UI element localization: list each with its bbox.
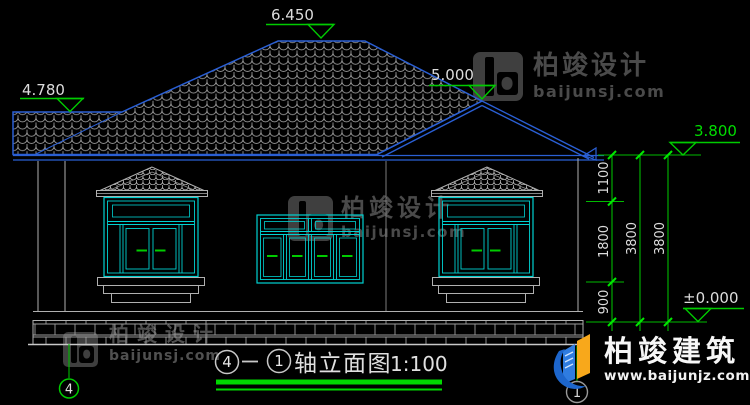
bay-pediment [435, 167, 539, 191]
gable-end-cap [584, 148, 596, 160]
marker-right-eave: 3.800 [670, 122, 740, 155]
axis-number: 4 [65, 383, 73, 398]
bay-pediment [100, 167, 204, 191]
elevation-value: 3.800 [694, 122, 737, 140]
title-underline-thin [216, 389, 442, 391]
bay-sill [433, 278, 540, 303]
bay-sill [98, 278, 205, 303]
title-axis-from: 4 [222, 353, 232, 371]
dim-text-3800-a: 3800 [625, 222, 640, 255]
plinth-top-lines [33, 312, 583, 321]
level-triangle-icon [670, 143, 696, 156]
drawing-title: 4 1 轴立面图 1:100 [216, 350, 448, 391]
title-axis-to: 1 [274, 352, 284, 370]
level-triangle-icon [57, 99, 83, 112]
elevation-value: 6.450 [271, 6, 314, 24]
dim-text-3800-b: 3800 [653, 222, 668, 255]
dim-text-900: 900 [597, 290, 612, 315]
elevation-value: ±0.000 [683, 289, 739, 307]
elevation-value: 5.000 [431, 66, 474, 84]
brand-domain-text: www.baijunjz.com [604, 368, 750, 384]
title-name: 轴立面图 [294, 351, 392, 377]
brand-logo: 柏竣建筑 www.baijunjz.com [549, 329, 750, 391]
baijun-building-icon [549, 329, 601, 391]
marker-ground: ±0.000 [683, 289, 744, 322]
eave-line [13, 156, 604, 161]
brand-cn-text: 柏竣建筑 [604, 336, 750, 368]
elevation-value: 4.780 [22, 81, 65, 99]
brick-plinth [33, 321, 583, 345]
level-triangle-icon [685, 309, 711, 322]
title-scale: 1:100 [390, 352, 448, 376]
title-underline-thick [216, 380, 442, 385]
cad-elevation-canvas: 柏竣设计 baijunsj.com 柏竣设计 baijunsj.com 柏竣设计… [0, 0, 750, 405]
main-roof [13, 41, 604, 160]
left-bay-window [97, 167, 208, 303]
marker-ridge: 6.450 [266, 6, 334, 38]
right-bay-window [432, 167, 543, 303]
marker-left-roof: 4.780 [20, 81, 84, 112]
dim-text-1100: 1100 [597, 161, 612, 194]
center-window [257, 215, 363, 283]
axis-bubble-left: 4 [60, 344, 79, 398]
level-triangle-icon [308, 25, 334, 39]
dim-text-1800: 1800 [597, 225, 612, 258]
